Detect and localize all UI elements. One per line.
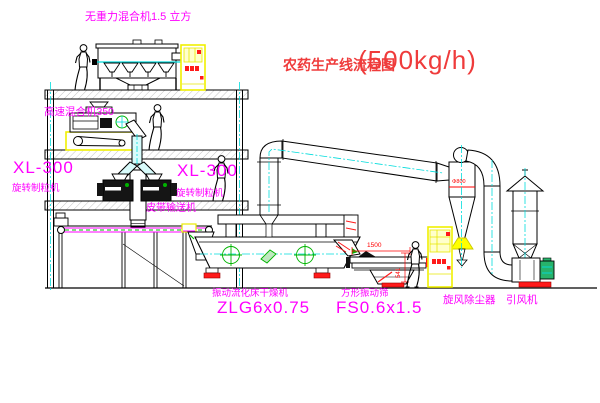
flow-diagram-canvas: 无重力混合机1.5 立方 农药生产线流程图 (500kg/h) 高速混合机350… xyxy=(0,0,600,403)
control-cabinet-top xyxy=(181,45,205,90)
rotary-granulator-left xyxy=(97,174,133,201)
fluid-bed-dryer xyxy=(195,215,360,278)
induced-draft-fan xyxy=(512,258,554,287)
cyclone-diameter-note: Φ800 xyxy=(452,180,466,186)
worker-second-floor xyxy=(148,105,165,150)
diagram-title-capacity: (500kg/h) xyxy=(358,47,477,73)
screen-length-dimension: 1500 xyxy=(367,243,381,250)
worker-top-floor xyxy=(74,45,91,90)
cyclone-dust-collector xyxy=(449,145,475,268)
screen-model-label: FS0.6x1.5 xyxy=(336,299,423,316)
cyclone-label: 旋风除尘器 xyxy=(443,295,496,306)
fan-label: 引风机 xyxy=(506,295,538,306)
screen-height-dimension: 541 xyxy=(396,268,402,278)
granulator-left-name-label: 旋转制粒机 xyxy=(12,184,60,194)
gravity-free-mixer xyxy=(92,40,194,90)
granulator-right-name-label: 旋转制粒机 xyxy=(176,189,224,199)
control-cabinet-ground xyxy=(428,227,452,287)
dryer-model-label: ZLG6x0.75 xyxy=(217,299,310,316)
cyclone-discharge-skirt xyxy=(451,238,473,249)
high-speed-mixer-label: 高速混合机350 xyxy=(44,107,114,118)
belt-conveyor-label: 皮带输送机 xyxy=(146,204,196,214)
granulator-right-model-label: XL-300 xyxy=(177,162,238,179)
gravity-mixer-label: 无重力混合机1.5 立方 xyxy=(85,12,191,23)
granulator-left-model-label: XL-300 xyxy=(13,159,74,176)
fan-motor xyxy=(540,261,554,279)
dryer-feet xyxy=(204,268,330,278)
fan-base xyxy=(519,282,551,287)
